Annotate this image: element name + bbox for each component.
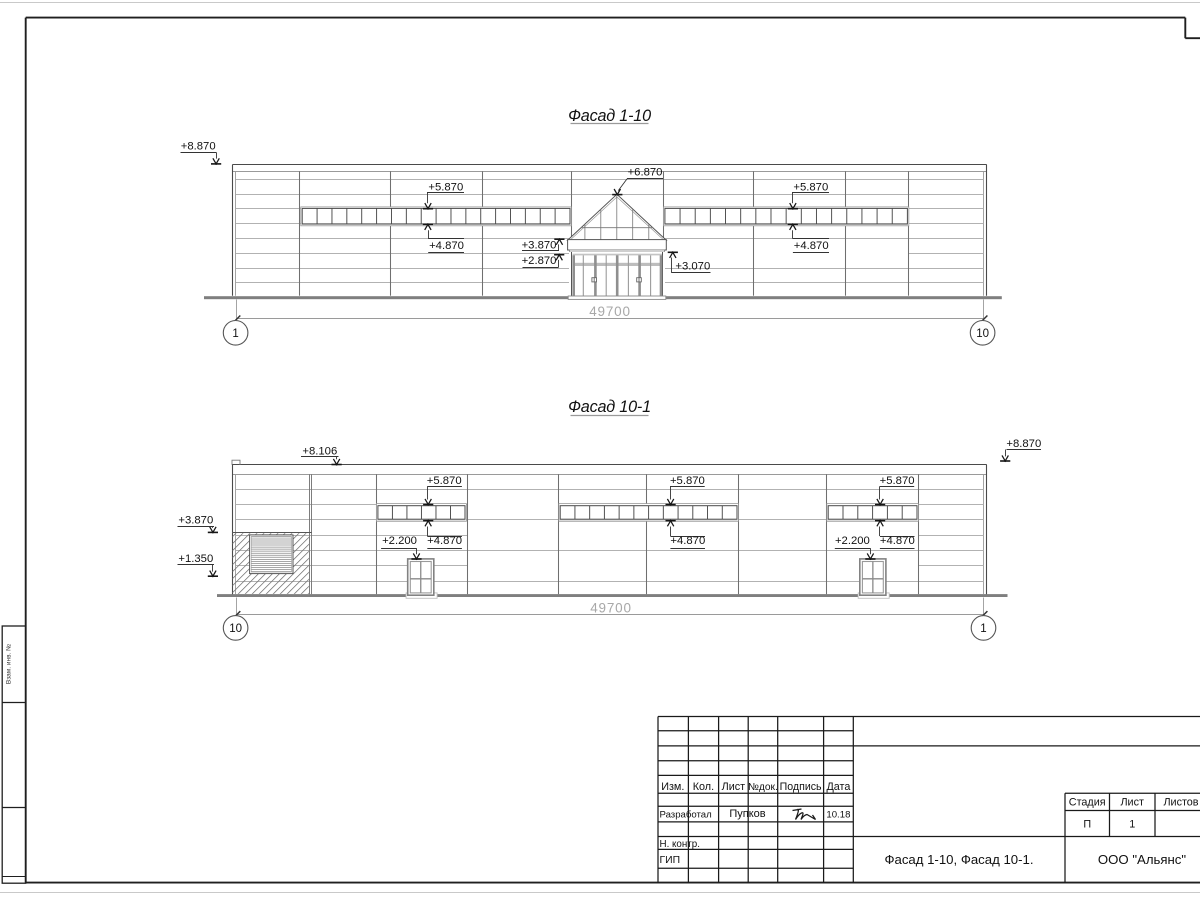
svg-text:1: 1 [980,623,986,635]
svg-text:+4.870: +4.870 [794,240,829,252]
svg-text:+8.870: +8.870 [181,141,216,153]
svg-text:Изм.: Изм. [661,781,684,793]
svg-text:Листов: Листов [1163,797,1198,809]
svg-text:+6.870: +6.870 [628,166,663,178]
svg-text:Фасад 1-10: Фасад 1-10 [568,107,651,125]
svg-text:+3.870: +3.870 [178,515,213,527]
svg-text:+3.870: +3.870 [522,240,557,252]
svg-text:Кол.: Кол. [693,781,714,793]
svg-text:+5.870: +5.870 [670,475,705,487]
svg-text:+4.870: +4.870 [427,535,462,547]
svg-text:10.18: 10.18 [826,810,850,821]
svg-text:+8.870: +8.870 [1006,438,1041,450]
svg-text:10: 10 [229,623,242,635]
svg-text:+2.200: +2.200 [835,535,870,547]
svg-text:Фасад 10-1: Фасад 10-1 [568,398,651,416]
svg-text:Дата: Дата [826,781,850,793]
svg-text:Фасад 1-10, Фасад 10-1.: Фасад 1-10, Фасад 10-1. [884,852,1033,867]
svg-text:ГИП: ГИП [660,855,681,866]
svg-text:+8.106: +8.106 [302,445,337,457]
svg-text:Лист: Лист [722,781,746,793]
svg-text:Стадия: Стадия [1069,797,1106,809]
svg-text:П: П [1083,818,1091,830]
svg-text:Н. контр.: Н. контр. [660,839,700,850]
svg-text:+5.870: +5.870 [427,475,462,487]
svg-text:+2.200: +2.200 [382,535,417,547]
svg-text:Разработал: Разработал [660,810,712,821]
svg-text:+2.870: +2.870 [522,255,557,267]
svg-text:+5.870: +5.870 [428,181,463,193]
svg-text:10: 10 [976,328,989,340]
svg-text:ООО "Альянс": ООО "Альянс" [1098,852,1186,867]
svg-text:1: 1 [232,328,238,340]
svg-text:49700: 49700 [589,304,631,319]
svg-text:+4.870: +4.870 [880,535,915,547]
svg-text:+5.870: +5.870 [880,475,915,487]
svg-text:1: 1 [1129,818,1135,830]
svg-text:№док.: №док. [748,782,778,793]
svg-text:+4.870: +4.870 [670,535,705,547]
svg-text:Пупков: Пупков [729,808,765,820]
svg-text:+5.870: +5.870 [793,181,828,193]
svg-text:Лист: Лист [1120,797,1144,809]
svg-text:+4.870: +4.870 [429,240,464,252]
svg-text:49700: 49700 [590,600,632,615]
svg-text:Взам. инв. №: Взам. инв. № [6,644,13,684]
svg-text:+3.070: +3.070 [675,260,710,272]
svg-text:+1.350: +1.350 [178,553,213,565]
svg-text:Подпись: Подпись [780,781,822,793]
